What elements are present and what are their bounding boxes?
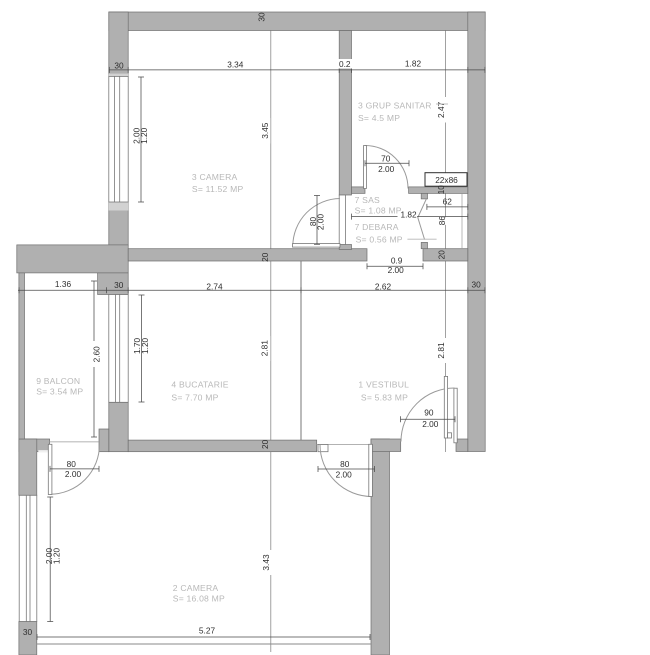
svg-text:30: 30 [114,61,124,71]
svg-text:1.82: 1.82 [401,210,418,220]
svg-text:2.00: 2.00 [388,265,405,275]
svg-text:S= 5.83 MP: S= 5.83 MP [361,392,408,402]
svg-text:20: 20 [260,439,270,449]
svg-text:2.00: 2.00 [316,214,326,231]
svg-text:5.27: 5.27 [199,626,216,636]
svg-text:3.45: 3.45 [260,122,270,139]
svg-text:70: 70 [381,153,391,163]
svg-text:30: 30 [257,12,267,22]
svg-text:90: 90 [424,408,434,418]
svg-text:1.20: 1.20 [140,337,150,354]
svg-text:80: 80 [340,459,350,469]
svg-text:3 CAMERA: 3 CAMERA [192,172,238,182]
svg-text:3 GRUP SANITAR: 3 GRUP SANITAR [358,101,432,111]
svg-text:S= 16.08 MP: S= 16.08 MP [173,593,225,603]
svg-text:4 BUCATARIE: 4 BUCATARIE [171,380,228,390]
svg-text:1.82: 1.82 [405,59,422,69]
svg-text:7 DEBARA: 7 DEBARA [355,222,399,232]
svg-text:2.00: 2.00 [422,419,439,429]
svg-text:1.20: 1.20 [51,548,61,565]
svg-text:30: 30 [23,627,33,637]
svg-text:2 CAMERA: 2 CAMERA [173,583,219,593]
svg-text:1 VESTIBUL: 1 VESTIBUL [358,380,409,390]
svg-text:1.36: 1.36 [55,279,72,289]
svg-text:S= 11.52 MP: S= 11.52 MP [192,184,244,194]
svg-text:0.2: 0.2 [339,59,351,69]
svg-text:2.00: 2.00 [65,469,82,479]
svg-text:2.81: 2.81 [260,340,270,357]
svg-text:2.00: 2.00 [336,470,353,480]
svg-text:3.34: 3.34 [227,60,244,70]
svg-text:9 BALCON: 9 BALCON [36,376,80,386]
svg-text:S= 7.70 MP: S= 7.70 MP [171,392,218,402]
svg-text:2.74: 2.74 [206,282,223,292]
svg-text:20: 20 [437,250,447,260]
svg-text:80: 80 [67,459,77,469]
svg-text:1.20: 1.20 [139,127,149,144]
svg-text:3.43: 3.43 [261,554,271,571]
svg-text:10: 10 [436,185,446,195]
svg-text:7 SAS: 7 SAS [355,195,380,205]
svg-text:S= 1.08 MP: S= 1.08 MP [355,205,402,215]
svg-text:S= 4.5 MP: S= 4.5 MP [358,113,400,123]
svg-text:2.60: 2.60 [92,346,102,363]
svg-text:20: 20 [260,252,270,262]
svg-text:22x86: 22x86 [435,175,458,185]
svg-text:86: 86 [437,216,447,226]
svg-text:2.00: 2.00 [378,164,395,174]
svg-text:62: 62 [443,197,453,207]
svg-text:S= 3.54 MP: S= 3.54 MP [36,386,83,396]
svg-text:2.81: 2.81 [436,342,446,359]
svg-text:2.62: 2.62 [375,282,392,292]
svg-text:30: 30 [114,280,124,290]
svg-text:30: 30 [471,279,481,289]
svg-text:S= 0.56 MP: S= 0.56 MP [356,234,403,244]
